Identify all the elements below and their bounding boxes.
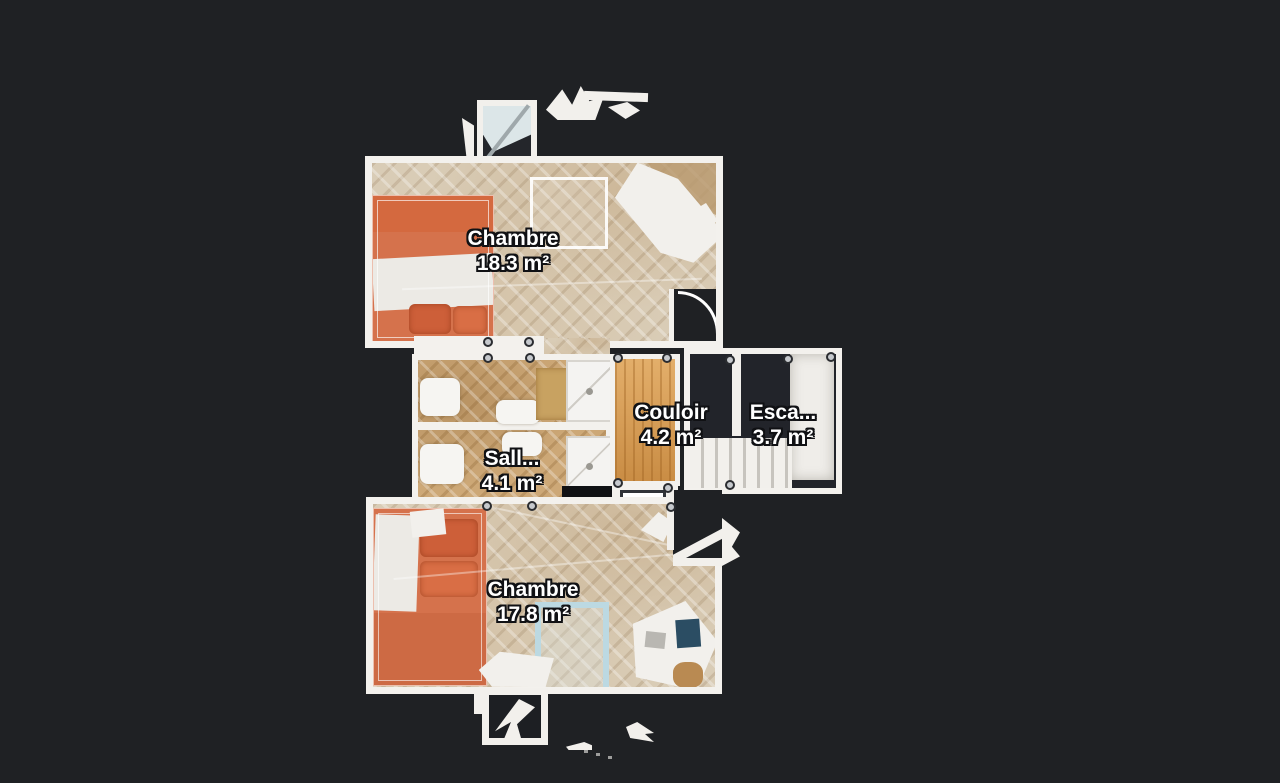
doorway-notch xyxy=(669,289,716,341)
notch-wall-left xyxy=(667,490,674,550)
window-fragment-bottom xyxy=(482,688,548,745)
label-salle: Sall... 4.1 m² xyxy=(482,446,543,496)
vertex-handle[interactable] xyxy=(826,352,836,362)
desk-panel xyxy=(645,631,667,649)
vertex-handle[interactable] xyxy=(483,337,493,347)
vertex-handle[interactable] xyxy=(666,502,676,512)
room-name: Chambre xyxy=(487,577,578,602)
label-couloir: Couloir 4.2 m² xyxy=(634,400,708,450)
nightstand xyxy=(410,508,447,537)
room-area: 17.8 m² xyxy=(487,602,578,627)
vertex-handle[interactable] xyxy=(613,353,623,363)
vertex-handle[interactable] xyxy=(524,337,534,347)
vertex-handle[interactable] xyxy=(662,353,672,363)
sink-icon xyxy=(496,400,540,424)
scan-fragment xyxy=(474,688,484,714)
label-chambre-bottom: Chambre 17.8 m² xyxy=(487,577,578,627)
vertex-handle[interactable] xyxy=(482,501,492,511)
floor-plan-canvas[interactable]: Chambre 18.3 m² Sall... 4.1 m² Couloir 4… xyxy=(0,0,1280,783)
scan-dots xyxy=(584,750,588,753)
vertex-handle[interactable] xyxy=(525,353,535,363)
toilet-icon xyxy=(420,378,460,416)
room-area: 3.7 m² xyxy=(750,425,817,450)
room-name: Sall... xyxy=(482,446,543,471)
scan-dots xyxy=(608,756,612,759)
room-name: Chambre xyxy=(467,226,558,251)
laptop xyxy=(675,619,701,649)
room-notch-void xyxy=(673,490,722,562)
vertex-handle[interactable] xyxy=(527,501,537,511)
vertex-handle[interactable] xyxy=(725,480,735,490)
window-fragment-top xyxy=(477,100,537,164)
shower-top xyxy=(566,360,612,422)
label-chambre-top: Chambre 18.3 m² xyxy=(467,226,558,276)
room-name: Esca... xyxy=(750,400,817,425)
room-area: 18.3 m² xyxy=(467,251,558,276)
notch-wall-bottom xyxy=(673,558,722,566)
scan-dots xyxy=(596,753,600,756)
scan-fragment xyxy=(608,102,640,119)
vertex-handle[interactable] xyxy=(725,355,735,365)
room-area: 4.1 m² xyxy=(482,471,543,496)
vertex-handle[interactable] xyxy=(483,353,493,363)
room-area: 4.2 m² xyxy=(634,425,708,450)
room-name: Couloir xyxy=(634,400,708,425)
stair-wall-strip xyxy=(732,354,741,436)
scan-fragment xyxy=(722,518,740,566)
vertex-handle[interactable] xyxy=(783,354,793,364)
label-escalier: Esca... 3.7 m² xyxy=(750,400,817,450)
vertex-handle[interactable] xyxy=(663,483,673,493)
scan-fragment xyxy=(626,722,654,742)
scan-fragment xyxy=(566,742,592,750)
vertex-handle[interactable] xyxy=(613,478,623,488)
chair xyxy=(673,662,703,687)
toilet-icon xyxy=(420,444,464,484)
